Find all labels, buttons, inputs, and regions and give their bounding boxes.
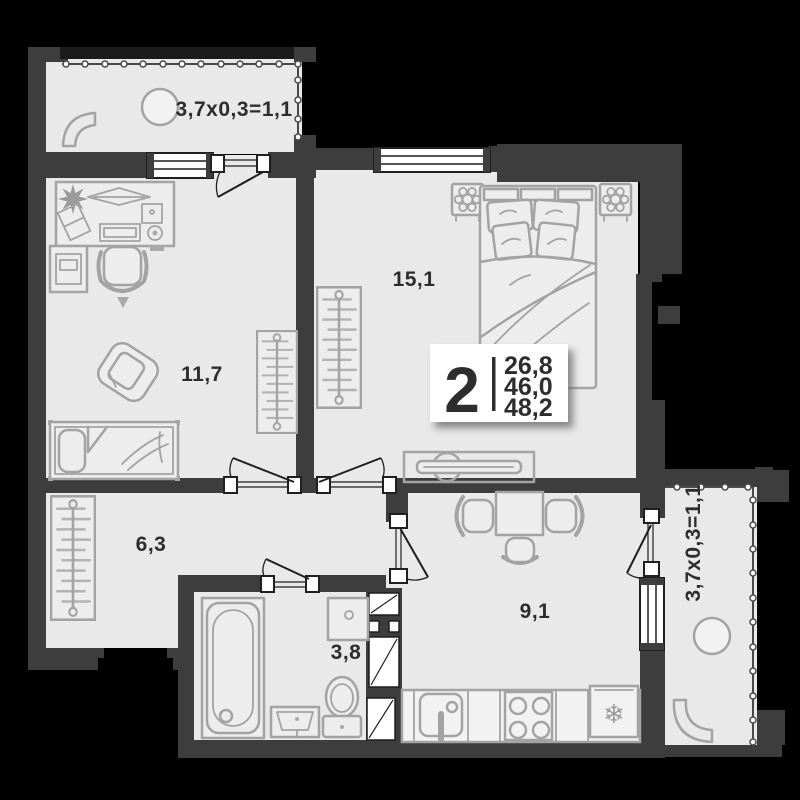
toilet bbox=[323, 677, 361, 737]
pillow-icon bbox=[492, 222, 532, 260]
hall-furniture bbox=[51, 496, 95, 620]
room-label-hall: 6,3 bbox=[136, 533, 167, 556]
floor-plan-stage: ❄ 3,7x0,3=1,1 3,7x0,3=1,1 15,1 11,7 6,3 … bbox=[0, 0, 800, 800]
room-label-bedroom: 15,1 bbox=[393, 268, 436, 291]
washing-machine bbox=[328, 598, 368, 640]
summary-divider bbox=[492, 357, 496, 411]
nightstand-right bbox=[600, 184, 631, 221]
floor-plan: ❄ 3,7x0,3=1,1 3,7x0,3=1,1 15,1 11,7 6,3 … bbox=[0, 0, 800, 800]
rooms-count: 2 bbox=[444, 354, 480, 426]
room-label-living: 11,7 bbox=[181, 363, 223, 386]
balcony-top-label: 3,7x0,3=1,1 bbox=[175, 98, 292, 121]
table-round-icon bbox=[142, 89, 178, 125]
bathtub bbox=[202, 598, 264, 738]
single-bed bbox=[48, 420, 180, 481]
balcony-right-floor bbox=[663, 485, 757, 747]
window-living-balcony bbox=[147, 153, 213, 178]
duct-shaft-openings bbox=[367, 593, 399, 740]
entry-jamb-right bbox=[167, 648, 173, 658]
pillow-icon bbox=[536, 222, 575, 260]
plant-icon bbox=[58, 184, 88, 214]
bathroom-sink bbox=[271, 707, 319, 737]
balcony-right-label: 3,7x0,3=1,1 bbox=[682, 484, 705, 601]
window-kitchen-balcony bbox=[640, 578, 664, 650]
room-label-kitchen: 9,1 bbox=[520, 600, 551, 623]
fridge-snowflake-icon: ❄ bbox=[603, 700, 625, 730]
dining-table bbox=[496, 492, 543, 535]
window-bedroom bbox=[374, 148, 490, 172]
kitchen-counter: ❄ bbox=[402, 686, 640, 742]
table-round-icon bbox=[694, 618, 730, 654]
wardrobe bbox=[257, 331, 297, 433]
summary-box: 2 26,8 46,0 48,2 bbox=[430, 344, 568, 426]
nightstand-left bbox=[452, 184, 483, 221]
fridge: ❄ bbox=[590, 686, 638, 737]
wardrobe bbox=[51, 496, 95, 620]
wardrobe bbox=[317, 287, 361, 408]
room-label-bath: 3,8 bbox=[331, 641, 362, 664]
area-with-balcony: 48,2 bbox=[504, 394, 553, 422]
entry-jamb-left bbox=[98, 648, 104, 658]
